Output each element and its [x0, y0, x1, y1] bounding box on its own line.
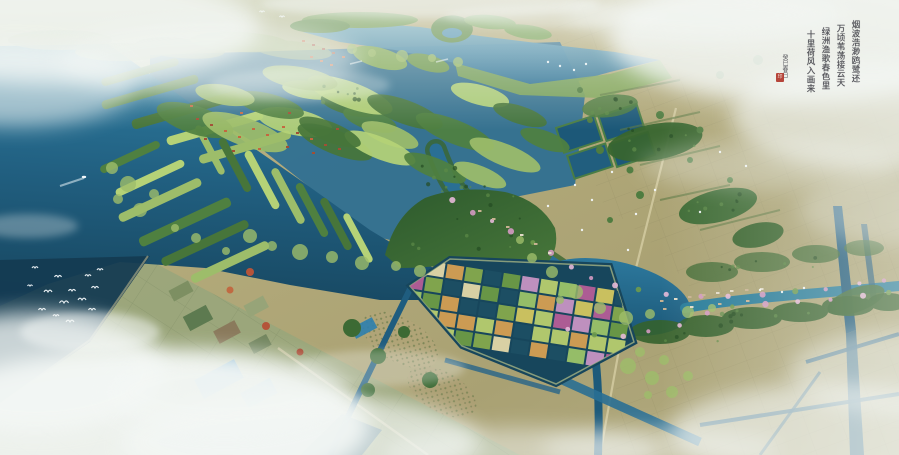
canopy-dot	[509, 246, 511, 248]
garden-plot	[480, 286, 499, 302]
village-building	[492, 218, 496, 220]
wetland-park-aerial-rendering: 烟波浩渺鸥鹭还 万顷苇荡接云天 绿洲渔歌春色里 十里荷风入画来 癸巳春日 印	[0, 0, 899, 455]
canopy-dot	[486, 193, 490, 197]
garden-plot	[550, 329, 569, 345]
blossom-tree	[569, 264, 574, 269]
floating-vegetation	[106, 162, 118, 174]
blossom-tree	[592, 332, 597, 337]
village-roof	[312, 152, 315, 154]
floating-vegetation	[149, 189, 159, 199]
village-building	[534, 243, 538, 245]
canopy-dot	[432, 176, 436, 180]
cloud-wisp	[20, 312, 160, 352]
egret	[611, 171, 613, 173]
cloud-wisp	[295, 350, 465, 386]
garden-plot	[532, 326, 551, 342]
garden-plot	[473, 333, 492, 349]
floating-vegetation	[391, 261, 401, 271]
egret	[581, 229, 583, 231]
canopy-dot	[411, 242, 414, 245]
canopy-dot	[453, 176, 455, 178]
village-building	[548, 252, 552, 254]
canopy-dot	[488, 203, 492, 207]
garden-plot	[513, 323, 532, 339]
village-roof	[338, 148, 341, 150]
garden-plot	[569, 332, 588, 348]
blossom-tree	[449, 197, 455, 203]
garden-plot	[497, 304, 516, 320]
floating-vegetation	[222, 247, 230, 255]
scene-canvas	[0, 0, 899, 455]
garden-plot	[588, 335, 607, 351]
garden-plot	[515, 307, 534, 323]
floating-vegetation	[133, 203, 147, 217]
garden-plot	[424, 277, 443, 293]
blossom-tree	[470, 210, 476, 216]
garden-plot	[440, 296, 459, 312]
canopy-dot	[444, 168, 448, 172]
floating-vegetation	[171, 224, 179, 232]
floating-vegetation	[546, 266, 558, 278]
canopy-dot	[441, 190, 443, 192]
floating-vegetation	[267, 241, 277, 251]
floating-vegetation	[645, 371, 659, 385]
canopy-dot	[464, 185, 468, 189]
village-roof	[286, 146, 289, 148]
garden-plot	[510, 339, 529, 355]
village-building	[520, 234, 524, 236]
village-roof	[310, 138, 313, 140]
canopy-dot	[426, 182, 430, 186]
garden-plot	[483, 270, 502, 286]
floating-vegetation	[620, 358, 636, 374]
garden-plot	[534, 310, 553, 326]
egret	[547, 205, 549, 207]
garden-plot	[457, 314, 476, 330]
village-roof	[258, 148, 261, 150]
village-roof	[204, 138, 207, 140]
egret	[591, 199, 593, 201]
garden-plot	[574, 301, 593, 317]
canopy-dot	[460, 186, 464, 190]
canopy-dot	[628, 139, 631, 142]
garden-plot	[502, 273, 521, 289]
garden-plot	[475, 317, 494, 333]
garden-plot	[478, 301, 497, 317]
floating-vegetation	[326, 251, 338, 263]
canopy-dot	[417, 247, 420, 250]
floating-vegetation	[594, 302, 606, 314]
garden-plot	[443, 280, 462, 296]
village-building	[506, 226, 510, 228]
egret	[627, 249, 629, 251]
floating-vegetation	[355, 256, 369, 270]
floating-vegetation	[120, 176, 136, 192]
garden-plot	[595, 288, 614, 304]
village-roof	[238, 136, 241, 138]
garden-plot	[499, 289, 518, 305]
floating-vegetation	[569, 285, 583, 299]
floating-vegetation	[113, 194, 123, 204]
canopy-dot	[483, 185, 485, 187]
canopy-dot	[453, 166, 458, 171]
boat	[82, 176, 86, 178]
floating-vegetation	[619, 311, 633, 325]
garden-plot	[548, 345, 567, 361]
village-roof	[324, 144, 327, 146]
floating-vegetation	[243, 229, 257, 243]
blossom-tree	[636, 287, 642, 293]
floating-vegetation	[414, 265, 426, 277]
canopy-dot	[632, 147, 636, 151]
blossom-tree	[620, 334, 625, 339]
egret	[574, 184, 576, 186]
village-roof	[224, 130, 227, 132]
floating-vegetation	[644, 391, 652, 399]
floating-vegetation	[556, 296, 564, 304]
garden-plot	[459, 299, 478, 315]
canopy-dot	[512, 195, 514, 197]
garden-plot	[462, 283, 481, 299]
canopy-dot	[445, 186, 448, 189]
blossom-tree	[646, 329, 650, 333]
canopy-dot	[456, 218, 458, 220]
canopy-dot	[519, 217, 521, 219]
egret	[654, 189, 656, 191]
blossom-tree	[508, 228, 514, 234]
village-roof	[232, 150, 235, 152]
floating-vegetation	[635, 347, 645, 357]
bird	[28, 285, 33, 286]
garden-plot	[539, 279, 558, 295]
canopy-dot	[469, 186, 471, 188]
village-roof	[296, 132, 299, 134]
floating-vegetation	[516, 236, 524, 244]
blossom-tree	[612, 282, 618, 288]
garden-plot	[464, 267, 483, 283]
garden-plot	[572, 316, 591, 332]
floating-vegetation	[645, 309, 655, 319]
garden-plot	[520, 276, 539, 292]
garden-plot	[518, 292, 537, 308]
garden-plot	[494, 320, 513, 336]
floating-vegetation	[527, 253, 537, 263]
floating-vegetation	[191, 233, 201, 243]
blossom-tree	[589, 276, 593, 280]
garden-plot	[567, 348, 586, 364]
garden-plot	[445, 264, 464, 280]
village-building	[478, 210, 482, 212]
canopy-dot	[657, 148, 661, 152]
canopy-dot	[421, 165, 424, 168]
village-roof	[266, 134, 269, 136]
canopy-dot	[477, 247, 481, 251]
canopy-dot	[465, 234, 469, 238]
garden-plot	[537, 295, 556, 311]
blossom-tree	[565, 327, 570, 332]
garden-plot	[492, 336, 511, 352]
egret	[635, 213, 637, 215]
cloud-wisp	[210, 69, 390, 101]
floating-vegetation	[292, 244, 308, 260]
garden-plot	[529, 342, 548, 358]
